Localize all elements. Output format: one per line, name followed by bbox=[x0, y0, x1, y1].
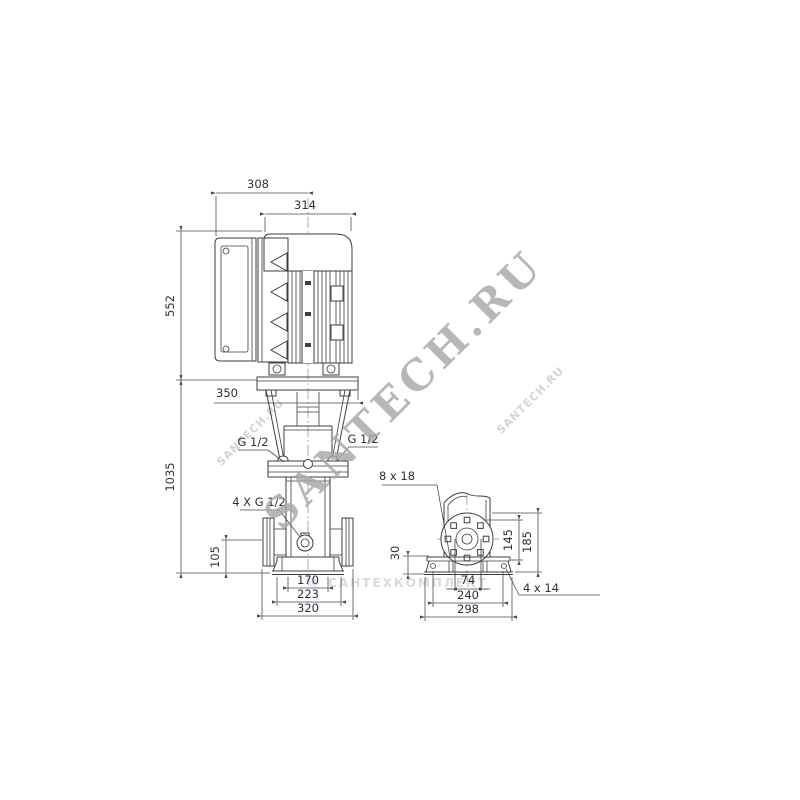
drawing-canvas: SANTECH.RU SANTECH.RU © САНТЕХКОМПЛЕКТ bbox=[0, 0, 800, 800]
dim-320-label: 320 bbox=[297, 601, 319, 615]
dim-30-label: 30 bbox=[388, 546, 402, 561]
dim-170-label: 170 bbox=[297, 573, 319, 587]
dim-223-label: 223 bbox=[297, 587, 319, 601]
dim-185-label: 185 bbox=[520, 531, 534, 553]
dim-298-label: 298 bbox=[457, 602, 479, 616]
dim-1035-label: 1035 bbox=[163, 462, 177, 491]
terminal-box bbox=[215, 238, 256, 361]
dim-350-label: 350 bbox=[216, 386, 238, 400]
dim-74-label: 74 bbox=[461, 573, 476, 587]
watermark-small-left: SANTECH.RU bbox=[214, 396, 287, 469]
watermark-small-right: SANTECH.RU bbox=[494, 364, 567, 437]
dim-552-label: 552 bbox=[163, 295, 177, 317]
port-left-label: G 1/2 bbox=[237, 435, 268, 449]
slot-8x18-label: 8 x 18 bbox=[379, 469, 415, 483]
dim-145-label: 145 bbox=[501, 529, 515, 551]
dim-314-label: 314 bbox=[294, 198, 316, 212]
motor-feet bbox=[269, 363, 339, 375]
dim-308-label: 308 bbox=[247, 177, 269, 191]
dim-240-label: 240 bbox=[457, 588, 479, 602]
motor-fins bbox=[288, 271, 352, 363]
pump-dimensional-drawing: SANTECH.RU SANTECH.RU © САНТЕХКОМПЛЕКТ bbox=[0, 0, 800, 800]
dim-105-label: 105 bbox=[208, 546, 222, 568]
hole-4x14-label: 4 x 14 bbox=[523, 581, 559, 595]
